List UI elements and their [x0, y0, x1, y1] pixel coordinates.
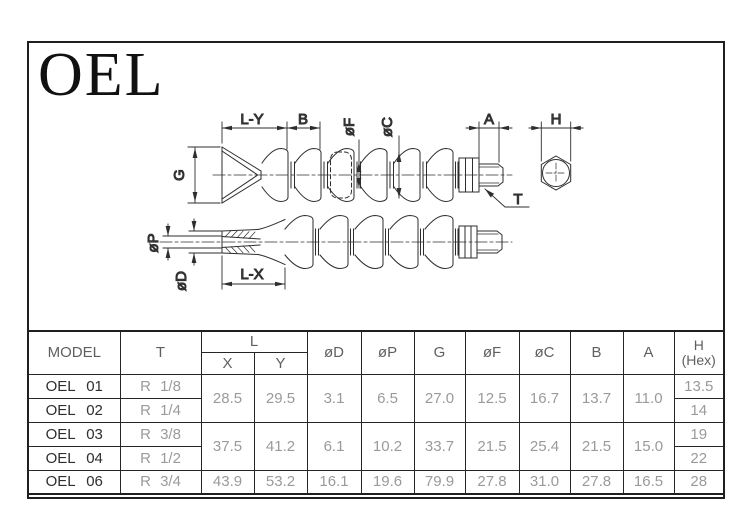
y-cell: 53.2: [254, 470, 307, 494]
hex-cell: 22: [674, 446, 724, 470]
oc-cell: 25.4: [519, 422, 570, 470]
col-header-oc: øC: [519, 331, 570, 374]
spec-table: MODEL T L øD øP G øF øC B A H (Hex) X Y: [27, 330, 725, 495]
hex-cell: 13.5: [674, 374, 724, 398]
thread-cell: R 1/2: [120, 446, 201, 470]
op-cell: 6.5: [361, 374, 414, 422]
col-header-b: B: [570, 331, 623, 374]
model-cell: OEL 06: [28, 470, 120, 494]
od-cell: 16.1: [307, 470, 361, 494]
y-cell: 29.5: [254, 374, 307, 422]
x-cell: 37.5: [201, 422, 254, 470]
oc-cell: 16.7: [519, 374, 570, 422]
of-cell: 21.5: [465, 422, 519, 470]
a-cell: 15.0: [623, 422, 674, 470]
col-header-of: øF: [465, 331, 519, 374]
col-header-od: øD: [307, 331, 361, 374]
hex-cell: 14: [674, 398, 724, 422]
col-header-y: Y: [254, 352, 307, 374]
y-cell: 41.2: [254, 422, 307, 470]
of-cell: 27.8: [465, 470, 519, 494]
technical-drawing: L-Y B øF øC A H G T øP øD L-X: [0, 0, 750, 332]
datasheet-page: OEL: [0, 0, 750, 530]
table-row-oel03: OEL 03 R 3/8 37.5 41.2 6.1 10.2 33.7 21.…: [28, 422, 724, 446]
col-header-g: G: [414, 331, 465, 374]
col-header-x: X: [201, 352, 254, 374]
dim-label-g: G: [171, 169, 188, 181]
col-header-hex-line1: H: [675, 338, 724, 353]
od-cell: 3.1: [307, 374, 361, 422]
dim-label-t: T: [513, 191, 522, 208]
model-cell: OEL 02: [28, 398, 120, 422]
x-cell: 28.5: [201, 374, 254, 422]
dim-label-ly: L-Y: [240, 111, 263, 128]
x-cell: 43.9: [201, 470, 254, 494]
col-header-l: L: [201, 331, 307, 352]
hex-cell: 19: [674, 422, 724, 446]
a-cell: 16.5: [623, 470, 674, 494]
od-cell: 6.1: [307, 422, 361, 470]
g-cell: 33.7: [414, 422, 465, 470]
col-header-model: MODEL: [28, 331, 120, 374]
b-cell: 27.8: [570, 470, 623, 494]
b-cell: 13.7: [570, 374, 623, 422]
g-cell: 27.0: [414, 374, 465, 422]
table-row-oel01: OEL 01 R 1/8 28.5 29.5 3.1 6.5 27.0 12.5…: [28, 374, 724, 398]
dim-label-od: øD: [173, 271, 190, 291]
dim-label-op: øP: [145, 233, 162, 252]
col-header-t: T: [120, 331, 201, 374]
dim-label-a: A: [484, 111, 494, 128]
op-cell: 10.2: [361, 422, 414, 470]
thread-cell: R 1/8: [120, 374, 201, 398]
thread-cell: R 3/4: [120, 470, 201, 494]
thread-cell: R 3/8: [120, 422, 201, 446]
hex-cell: 28: [674, 470, 724, 494]
g-cell: 79.9: [414, 470, 465, 494]
model-cell: OEL 03: [28, 422, 120, 446]
dim-label-h: H: [551, 111, 562, 128]
dim-label-lx: L-X: [240, 266, 263, 283]
table-row-oel06: OEL 06 R 3/4 43.9 53.2 16.1 19.6 79.9 27…: [28, 470, 724, 494]
col-header-op: øP: [361, 331, 414, 374]
dim-label-oc-top: øC: [379, 117, 396, 137]
col-header-a: A: [623, 331, 674, 374]
model-cell: OEL 04: [28, 446, 120, 470]
dim-label-of-top: øF: [341, 118, 358, 136]
oc-cell: 31.0: [519, 470, 570, 494]
a-cell: 11.0: [623, 374, 674, 422]
hex-end-view: [541, 156, 570, 190]
thread-cell: R 1/4: [120, 398, 201, 422]
model-cell: OEL 01: [28, 374, 120, 398]
op-cell: 19.6: [361, 470, 414, 494]
dim-label-b: B: [298, 111, 308, 128]
of-cell: 12.5: [465, 374, 519, 422]
b-cell: 21.5: [570, 422, 623, 470]
col-header-hex-line2: (Hex): [675, 353, 724, 368]
col-header-hex: H (Hex): [674, 331, 724, 374]
